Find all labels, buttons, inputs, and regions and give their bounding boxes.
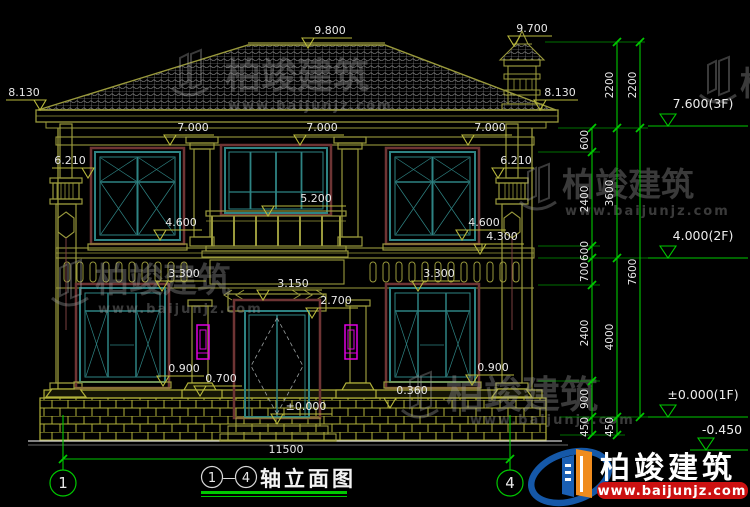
title-underline-thick [201,491,347,494]
elevation-label-0700: 0.700 [205,372,237,385]
brand-logo-text: 柏竣建筑 [600,451,736,486]
title-underline-thin [201,496,347,497]
elevation-label-entry: ±0.000 [286,400,327,413]
dim-outer-1: 7600 [627,259,639,286]
chevron-ornament [224,290,324,300]
brand-logo-url: www.baijunjz.com [598,484,747,499]
elevation-drawing: 柏竣建筑 www.baijunjz.com 柏竣建筑 www.baijunjz.… [0,0,750,507]
dim-middle-2: 4000 [604,324,616,351]
elevation-label-0360: 0.360 [396,384,428,397]
dim-middle-3: 450 [604,417,616,437]
dim-middle-1: 3600 [604,180,616,207]
watermark: 柏竣建筑 www.baijunjz.com [520,164,730,219]
level-label-footing: -0.450 [702,422,742,437]
elevation-label-capital-right: 6.210 [500,154,532,167]
elevation-label-cornice-left: 7.000 [177,121,209,134]
dim-middle-0: 2200 [604,72,616,99]
watermark-url: www.baijunjz.com [98,302,263,317]
elevation-label-3300-right: 3.300 [423,267,455,280]
dim-inner-2: 600 [579,241,591,261]
title-text: 轴立面图 [260,467,356,491]
dim-inner-4: 2400 [579,320,591,347]
axis-bubble-4-label: 4 [505,474,515,492]
elevation-label-cornice-center: 7.000 [306,121,338,134]
wall-lamp-left-icon [197,325,209,359]
axis-bubble-1-label: 1 [58,474,68,492]
title-axis-end: 4 [242,471,250,486]
width-dimension-value: 11500 [269,443,304,456]
dim-inner-5: 900 [579,389,591,409]
title-dash: — [223,471,236,486]
elevation-label-cornice-right: 7.000 [474,121,506,134]
elevation-label-ridge: 9.800 [314,24,346,37]
dim-inner-0: 600 [579,130,591,150]
level-label-1f: ±0.000(1F) [667,387,738,402]
dim-inner-6: 450 [579,417,591,437]
level-label-3f: 7.600(3F) [673,96,734,111]
elevation-label-eave-right: 8.130 [544,86,576,99]
elevation-label-sill-right: 0.900 [477,361,509,374]
watermark-brand: 柏竣建筑 [740,64,750,103]
elevation-label-balcony-rail: 5.200 [300,192,332,205]
dimension-chain-lines [592,42,640,435]
dim-outer-0: 2200 [627,72,639,99]
title-axis-start: 1 [208,471,216,486]
elevation-label-chimney: 9.700 [516,22,548,35]
brand-logo: 柏竣建筑 www.baijunjz.com [525,442,748,507]
elevation-label-3300-left: 3.300 [168,267,200,280]
elevation-label-3150: 3.150 [277,277,309,290]
dim-inner-1: 2400 [579,186,591,213]
elevation-label-sill-left: 0.900 [168,362,200,375]
dim-inner-3: 700 [579,262,591,282]
elevation-label-4300: 4.300 [486,230,518,243]
balcony-railing [202,211,348,257]
elevation-label-eave-left: 8.130 [8,86,40,99]
elevation-label-2700: 2.700 [320,294,352,307]
watermark-url: www.baijunjz.com [228,99,393,114]
floor-levels: 7.600(3F) 4.000(2F) ±0.000(1F) -0.450 [648,96,748,450]
wall-lamp-right-icon [345,325,357,359]
drawing-title: 1 — 4 轴立面图 [201,467,356,498]
level-label-2f: 4.000(2F) [673,228,734,243]
watermark-brand: 柏竣建筑 [225,56,369,97]
elevation-label-band-left: 4.600 [165,216,197,229]
elevation-label-band-right: 4.600 [468,216,500,229]
elevation-label-capital-left: 6.210 [54,154,86,167]
